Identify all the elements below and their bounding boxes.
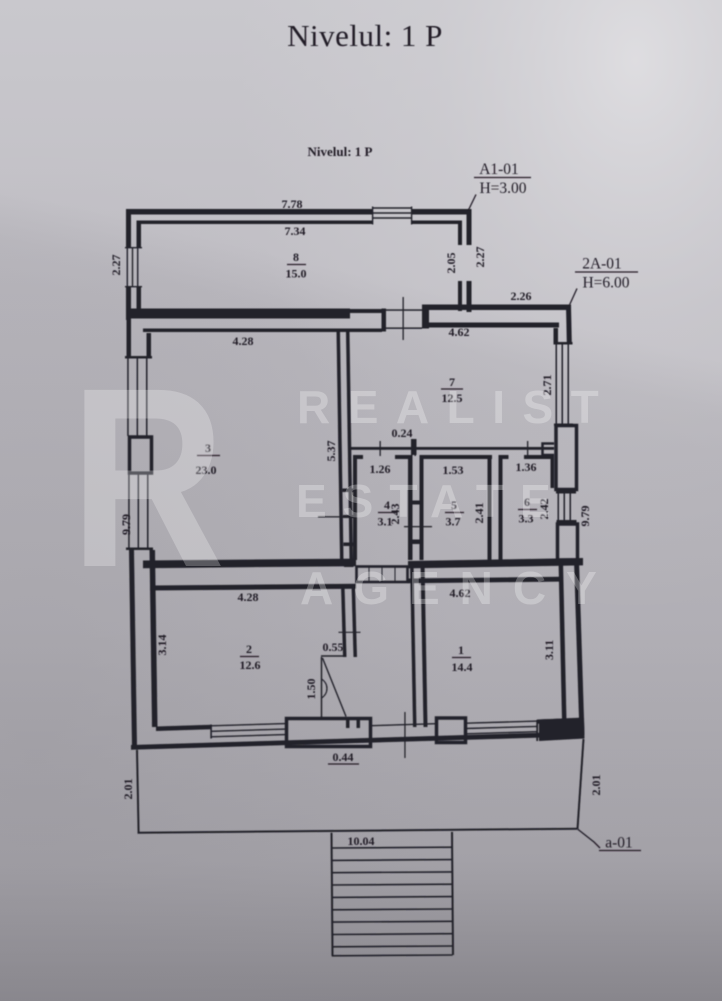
svg-text:1: 1 — [458, 643, 464, 657]
svg-text:12.6: 12.6 — [240, 658, 261, 672]
svg-text:0.55: 0.55 — [323, 640, 344, 654]
svg-text:Nivelul: 1 P: Nivelul: 1 P — [287, 18, 443, 53]
svg-text:2A-01: 2A-01 — [582, 256, 622, 273]
svg-text:10.04: 10.04 — [348, 834, 375, 848]
svg-text:2.01: 2.01 — [589, 775, 603, 796]
svg-text:3.11: 3.11 — [542, 640, 556, 660]
svg-text:0.44: 0.44 — [333, 750, 354, 764]
svg-text:A1-01: A1-01 — [479, 161, 519, 178]
svg-text:2.27: 2.27 — [473, 247, 487, 268]
svg-text:R: R — [70, 335, 225, 621]
svg-text:1.36: 1.36 — [516, 460, 537, 474]
svg-text:2.01: 2.01 — [121, 779, 135, 800]
svg-text:AGENCY: AGENCY — [300, 562, 617, 614]
svg-text:H=6.00: H=6.00 — [582, 275, 629, 292]
svg-text:14.4: 14.4 — [452, 660, 473, 674]
svg-text:7.78: 7.78 — [282, 197, 303, 211]
svg-text:Nivelul: 1 P: Nivelul: 1 P — [308, 144, 373, 159]
svg-text:4.28: 4.28 — [238, 590, 259, 604]
svg-text:15.0: 15.0 — [286, 267, 307, 281]
svg-text:4.28: 4.28 — [233, 334, 254, 348]
svg-text:7.34: 7.34 — [285, 224, 306, 238]
svg-text:2: 2 — [246, 642, 252, 656]
svg-text:a-01: a-01 — [605, 835, 633, 852]
svg-text:1.26: 1.26 — [370, 462, 391, 476]
svg-text:2.26: 2.26 — [511, 289, 532, 303]
svg-text:ESTATE: ESTATE — [296, 475, 567, 527]
svg-text:4.62: 4.62 — [449, 325, 470, 339]
svg-text:9.79: 9.79 — [578, 506, 592, 527]
svg-text:5.37: 5.37 — [324, 441, 338, 462]
svg-text:2.05: 2.05 — [444, 253, 458, 274]
svg-text:1.50: 1.50 — [304, 679, 318, 700]
svg-text:H=3.00: H=3.00 — [479, 180, 526, 197]
svg-text:2.27: 2.27 — [109, 255, 123, 276]
svg-text:3.14: 3.14 — [155, 635, 169, 656]
svg-text:8: 8 — [293, 250, 299, 264]
svg-text:REALIST: REALIST — [297, 381, 616, 433]
